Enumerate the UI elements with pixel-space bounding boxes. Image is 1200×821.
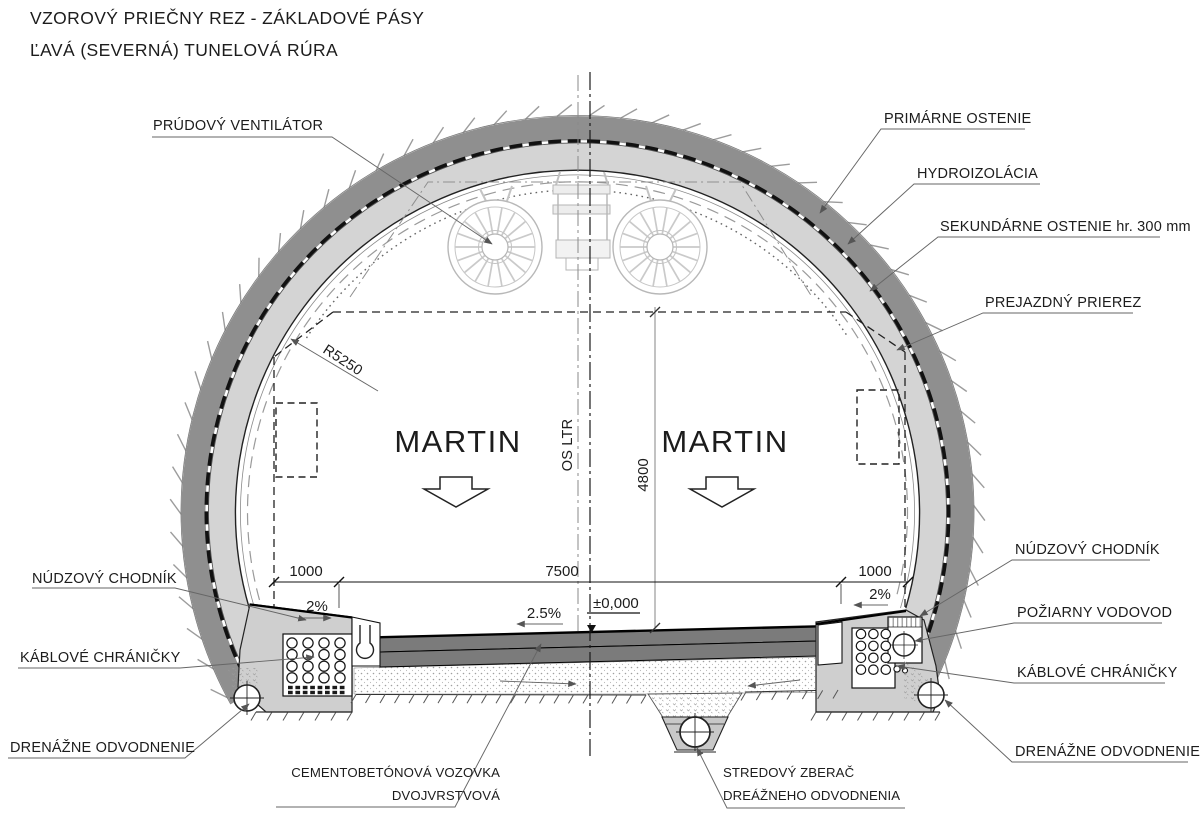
dim-roadway: 7500 xyxy=(545,563,578,580)
callout-walkway-right: NÚDZOVÝ CHODNÍK xyxy=(1015,541,1160,558)
emergency-walkway-left xyxy=(228,604,380,715)
dim-walkway-right: 1000 xyxy=(858,563,891,580)
tunnel-cross-section-page: R5250 MARTIN MARTIN xyxy=(0,0,1200,821)
down-arrow-icon xyxy=(690,477,754,507)
callout-walkway-left: NÚDZOVÝ CHODNÍK xyxy=(32,570,177,587)
level-mark-value: ±0,000 xyxy=(593,595,639,612)
callout-secondary-lining: SEKUNDÁRNE OSTENIE hr. 300 mm xyxy=(940,218,1191,235)
callout-collector-line1: STREDOVÝ ZBERAČ xyxy=(723,765,855,780)
slope-road-label: 2.5% xyxy=(527,605,561,622)
slope-right-label: 2% xyxy=(869,586,891,603)
clearance-height-value: 4800 xyxy=(635,458,652,491)
callout-conduits-left: KÁBLOVÉ CHRÁNIČKY xyxy=(20,649,181,666)
tunnel-cross-section-drawing: R5250 MARTIN MARTIN xyxy=(0,0,1200,821)
kerb-right xyxy=(818,622,842,665)
callout-clearance-profile: PREJAZDNÝ PRIEREZ xyxy=(985,294,1141,311)
dim-walkway-left: 1000 xyxy=(289,563,322,580)
niche-right xyxy=(857,390,899,464)
slope-left-label: 2% xyxy=(306,598,328,615)
callout-drainage-right: DRENÁŽNE ODVODNENIE xyxy=(1015,743,1200,760)
callout-jet-fan: PRÚDOVÝ VENTILÁTOR xyxy=(153,117,323,134)
page-title-line2: ĽAVÁ (SEVERNÁ) TUNELOVÁ RÚRA xyxy=(30,39,338,60)
fan-mount-frame xyxy=(553,172,610,270)
callout-conduits-right: KÁBLOVÉ CHRÁNIČKY xyxy=(1017,664,1178,681)
level-mark: ±0,000 xyxy=(587,595,640,633)
central-drainage-collector xyxy=(648,693,742,752)
callout-waterproofing: HYDROIZOLÁCIA xyxy=(917,165,1038,182)
direction-sign-right: MARTIN xyxy=(661,424,788,459)
callout-drainage-left: DRENÁŽNE ODVODNENIE xyxy=(10,739,195,756)
callout-primary-lining: PRIMÁRNE OSTENIE xyxy=(884,110,1032,127)
tunnel-axis-label: OS LTR xyxy=(560,419,576,472)
direction-sign-left: MARTIN xyxy=(394,424,521,459)
callout-pavement-line2: DVOJVRSTVOVÁ xyxy=(392,788,500,803)
callout-collector-line2: DREÁŽNEHO ODVODNENIA xyxy=(723,788,900,803)
width-dimension-line xyxy=(269,577,913,608)
callout-fire-main: POŽIARNY VODOVOD xyxy=(1017,604,1172,621)
page-title-line1: VZOROVÝ PRIEČNY REZ - ZÁKLADOVÉ PÁSY xyxy=(30,7,424,28)
down-arrow-icon xyxy=(424,477,488,507)
niche-left xyxy=(276,403,317,477)
callout-pavement-line1: CEMENTOBETÓNOVÁ VOZOVKA xyxy=(291,765,500,780)
jet-fan-left xyxy=(448,186,542,294)
